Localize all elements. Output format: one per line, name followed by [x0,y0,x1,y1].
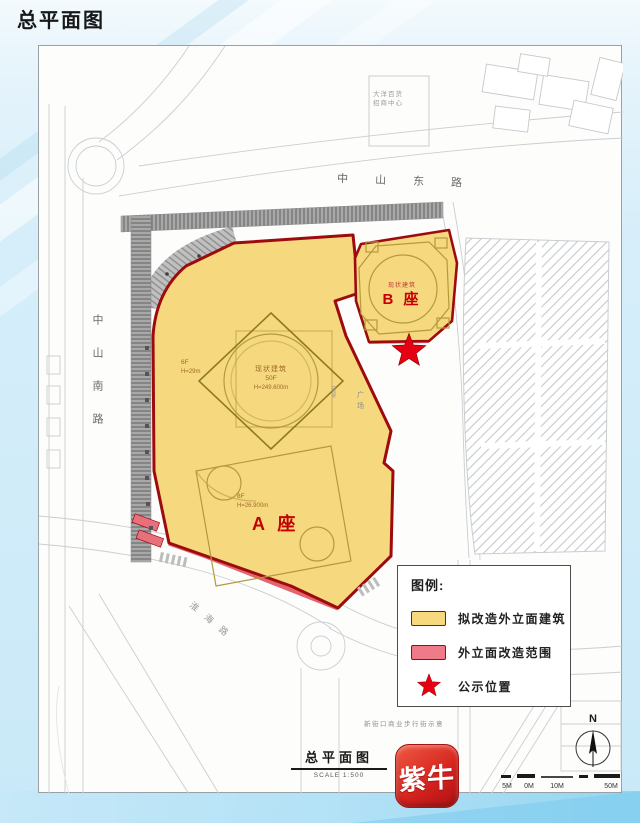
road-label-east: 中山东路 [337,172,489,190]
page-title: 总平面图 [17,4,105,33]
legend-item-renovation-range: 外立面改造范围 [411,642,570,662]
north-block-label-2: 招商中心 [373,98,403,107]
legend-item-label: 外立面改造范围 [458,644,553,661]
scalebar-label-50m: 50M [604,783,618,790]
paved-strip-left [131,216,151,562]
building-b-label: B 座 [382,290,421,308]
building-a-height-label: H=26.900m [237,503,268,509]
logo-text: 紫牛 [399,755,456,798]
parking-lot [463,238,609,554]
annex-height-label: H=29m [181,369,201,375]
ziniu-logo: 紫牛 [395,744,459,808]
drawing-title-block: 总平面图 SCALE 1:500 [291,747,387,779]
legend-item-label: 拟改造外立面建筑 [458,610,566,627]
road-label-southwest: 淮海路 [188,599,239,644]
dimension-label: 4660 [332,386,338,398]
building-a-floors-label: 8F [237,493,245,500]
drawing-scale: SCALE 1:500 [291,772,387,779]
building-b-note-label: 现状建筑 [388,281,416,289]
road-label-south: 中山南路 [91,314,104,446]
scalebar-label-10m: 10M [550,783,564,790]
building-a-label: A 座 [252,513,299,534]
north-block-label-1: 大洋百货 [373,89,403,98]
north-arrow: N [567,710,619,777]
paved-strip-top [121,202,443,232]
annex-floors-label: 6F [181,359,189,366]
legend: 图例: 拟改造外立面建筑 外立面改造范围 公示位置 [397,565,571,707]
tower-name-label: 现状建筑 [255,364,287,373]
site-plan-map: 中山东路 中山南路 淮海路 大洋百货 招商中心 现状建筑 50F H=249.6… [38,45,622,793]
legend-item-renovated-buildings: 拟改造外立面建筑 [411,608,570,628]
red-swatch [411,645,446,660]
scale-bar: 5M 0M 10M 50M [499,768,629,799]
legend-item-notice-location: 公示位置 [411,676,570,696]
scalebar-label-5m: 5M [502,783,512,790]
tower-height-label: H=249.600m [254,385,289,391]
star-icon [411,673,446,699]
yellow-swatch [411,611,446,626]
scalebar-label-0m: 0M [524,783,534,790]
legend-title: 图例: [411,575,570,594]
plaza-label: 广场 [357,390,365,413]
north-label: N [589,713,597,725]
map-caption: 新街口商业步行街示意 [324,718,484,728]
drawing-title: 总平面图 [291,747,387,770]
legend-item-label: 公示位置 [458,678,512,695]
tower-floors-label: 50F [265,375,276,382]
